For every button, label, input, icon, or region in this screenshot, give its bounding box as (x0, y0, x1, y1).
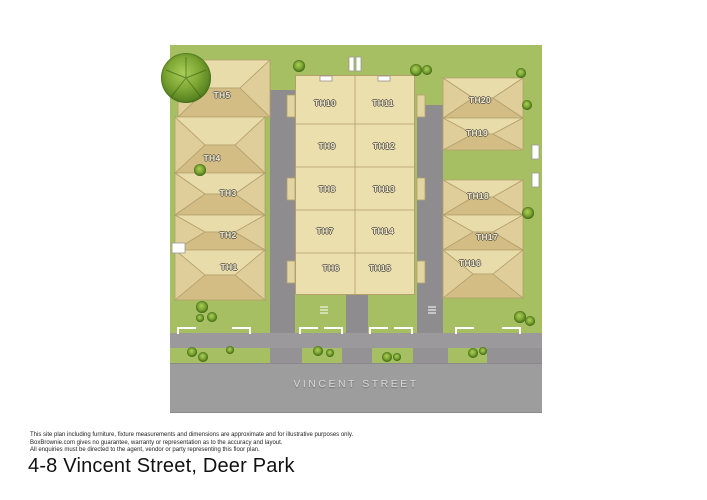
middle-townhouse-block (295, 75, 415, 295)
footpath (170, 333, 542, 348)
street-tree-icon (187, 347, 197, 357)
tree-icon (516, 68, 526, 78)
unit-label-th14: TH14 (372, 226, 394, 236)
driveway-crossover (342, 348, 372, 363)
street-tree-icon (326, 349, 334, 357)
large-tree-icon (161, 53, 211, 103)
unit-label-th12: TH12 (373, 141, 395, 151)
disclaimer-line: This site plan including furniture, fixt… (30, 432, 353, 440)
tree-icon (522, 100, 532, 110)
unit-label-th2: TH2 (220, 230, 237, 240)
disclaimer-line: BoxBrownie.com gives no guarantee, warra… (30, 440, 353, 448)
unit-label-th1: TH1 (221, 262, 238, 272)
street-tree-icon (226, 346, 234, 354)
street-name-label: VINCENT STREET (170, 378, 542, 390)
tree-icon (410, 64, 422, 76)
tree-icon (196, 301, 208, 313)
unit-label-th20: TH20 (469, 95, 491, 105)
page-title: 4-8 Vincent Street, Deer Park (28, 455, 295, 478)
unit-label-th4: TH4 (204, 153, 221, 163)
tree-icon (207, 312, 217, 322)
tree-icon (525, 316, 535, 326)
unit-label-th11: TH11 (372, 98, 394, 108)
unit-label-th8: TH8 (319, 184, 336, 194)
unit-label-th9: TH9 (319, 141, 336, 151)
tree-icon (196, 314, 204, 322)
street-tree-icon (198, 352, 208, 362)
unit-label-th10: TH10 (314, 98, 336, 108)
driveway-crossover (270, 348, 302, 363)
right-driveway (417, 105, 443, 333)
unit-label-th5: TH5 (214, 90, 231, 100)
unit-label-th7: TH7 (317, 226, 334, 236)
tree-icon (422, 65, 432, 75)
site-plan: VINCENT STREET (170, 45, 542, 413)
street-tree-icon (393, 353, 401, 361)
driveway-crossover (487, 348, 542, 363)
unit-label-th16: TH16 (459, 258, 481, 268)
tree-icon (293, 60, 305, 72)
unit-label-th3: TH3 (220, 188, 237, 198)
disclaimer-line: All enquiries must be directed to the ag… (30, 447, 353, 455)
unit-label-th17: TH17 (476, 232, 498, 242)
unit-label-th19: TH19 (466, 128, 488, 138)
tree-icon (194, 164, 206, 176)
driveway-crossover (413, 348, 448, 363)
unit-label-th6: TH6 (323, 263, 340, 273)
unit-label-th13: TH13 (373, 184, 395, 194)
site-plan-page: VINCENT STREET (0, 0, 707, 500)
left-driveway (270, 90, 295, 333)
unit-label-th15: TH15 (369, 263, 391, 273)
vincent-street-road: VINCENT STREET (170, 363, 542, 413)
street-tree-icon (479, 347, 487, 355)
street-tree-icon (382, 352, 392, 362)
disclaimer-text: This site plan including furniture, fixt… (30, 432, 353, 455)
tree-icon (522, 207, 534, 219)
unit-label-th18: TH18 (467, 191, 489, 201)
street-tree-icon (468, 348, 478, 358)
tree-branches (161, 53, 211, 103)
street-tree-icon (313, 346, 323, 356)
central-walkway (346, 295, 368, 333)
